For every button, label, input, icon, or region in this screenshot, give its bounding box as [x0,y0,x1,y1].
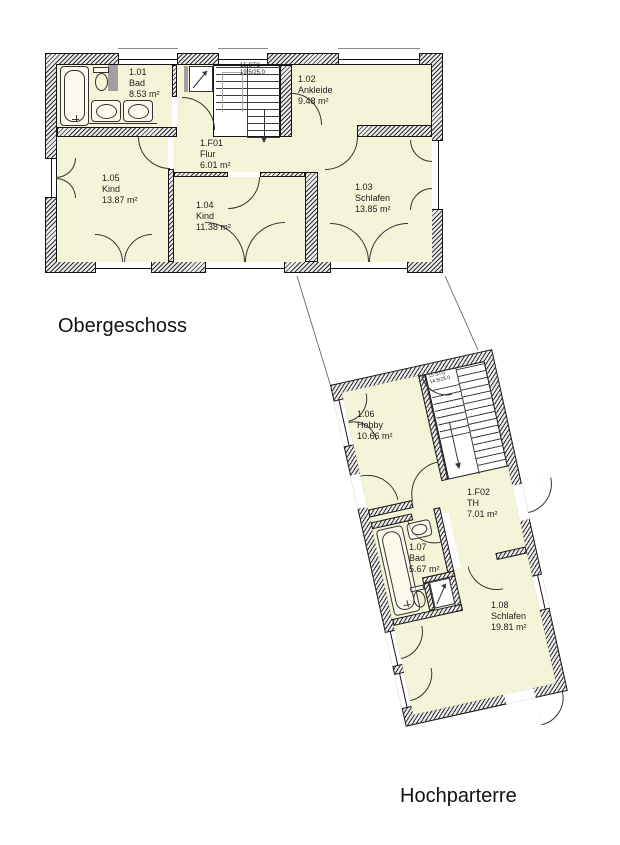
room-label: 1.04 Kind 11.38 m² [196,200,231,233]
room-name: TH [467,498,498,509]
plan-obergeschoss: 1.01 Bad 8.53 m² 15 STG 19.5/25.0 1.02 A… [45,53,443,273]
room-name: Ankleide [298,85,333,96]
window [118,53,178,64]
duct-block [108,65,118,91]
drain-icon [72,115,79,122]
room-area: 10.66 m² [357,431,393,442]
vanity-counter [89,123,157,124]
partition-wall [280,65,292,137]
stair-arrow-icon [455,463,462,470]
partition-wall [172,65,177,97]
room-name: Hobby [357,420,393,431]
room-label: 1.02 Ankleide 9.48 m² [298,74,333,107]
washbasin-icon [123,100,153,122]
stair-divider [247,66,248,138]
room-area: 5.67 m² [409,564,440,575]
room-label: 1.01 Bad 8.53 m² [129,67,160,100]
room-name: Schlafen [491,611,527,622]
window-sill [218,48,268,49]
room-area: 13.85 m² [355,204,391,215]
shower-icon [189,66,213,92]
room-label: 1.08 Schlafen 19.81 m² [491,600,527,633]
drain-icon [403,600,411,608]
room-area: 6.01 m² [200,160,231,171]
stair-railing [222,72,243,112]
room-id: 1.F02 [467,487,498,498]
projection-line [297,276,331,387]
room-id: 1.06 [357,409,393,420]
partition-wall [357,125,432,137]
window [205,262,285,273]
room-area: 13.87 m² [102,195,138,206]
partition-wall [168,169,174,262]
room-id: 1.01 [129,67,160,78]
room-name: Bad [409,553,440,564]
window [95,262,152,273]
room-name: Flur [200,149,231,160]
room-id: 1.F01 [200,138,231,149]
plan-title-hochparterre: Hochparterre [400,785,517,808]
room-label: 1.03 Schlafen 13.85 m² [355,182,391,215]
room-name: Bad [129,78,160,89]
stair-label: 15 STG 19.5/25.0 [240,63,265,76]
window-sill [118,48,178,49]
room-id: 1.03 [355,182,391,193]
room-id: 1.02 [298,74,333,85]
bathtub-icon [60,66,89,126]
partition-wall [174,172,228,177]
room-id: 1.05 [102,173,138,184]
plan-title-obergeschoss: Obergeschoss [58,315,187,338]
room-label: 1.05 Kind 13.87 m² [102,173,138,206]
room-id: 1.08 [491,600,527,611]
toilet-icon [95,73,108,91]
room-area: 9.48 m² [298,96,333,107]
room-id: 1.04 [196,200,231,211]
room-area: 7.01 m² [467,509,498,520]
washbasin-bowl [128,104,149,119]
window-sill [338,48,420,49]
washbasin-bowl [410,522,428,536]
stair-arrow-icon [264,109,265,137]
washbasin-icon [91,100,121,122]
room-label: 1.07 Bad 5.67 m² [409,542,440,575]
partition-wall [260,172,305,177]
window [330,262,408,273]
floor-plan-sheet: 1.01 Bad 8.53 m² 15 STG 19.5/25.0 1.02 A… [0,0,620,845]
room-name: Schlafen [355,193,391,204]
window [432,140,443,210]
window [45,158,56,198]
room-area: 11.38 m² [196,222,231,233]
room-label: 1.F01 Flur 6.01 m² [200,138,231,171]
room-area: 19.81 m² [491,622,527,633]
room-name: Kind [196,211,231,222]
room-area: 8.53 m² [129,89,160,100]
door-opening-fill [292,125,357,137]
room-label: 1.F02 TH 7.01 m² [467,487,498,520]
room-label: 1.06 Hobby 10.66 m² [357,409,393,442]
stair-arrow-icon [261,137,267,143]
washbasin-bowl [96,104,117,119]
shower-partition [184,66,188,92]
stair-rise-run: 19.5/25.0 [240,70,265,77]
room-id: 1.07 [409,542,440,553]
partition-wall [57,127,177,137]
window [338,53,420,64]
partition-wall [305,172,318,262]
room-name: Kind [102,184,138,195]
projection-line [445,276,478,350]
